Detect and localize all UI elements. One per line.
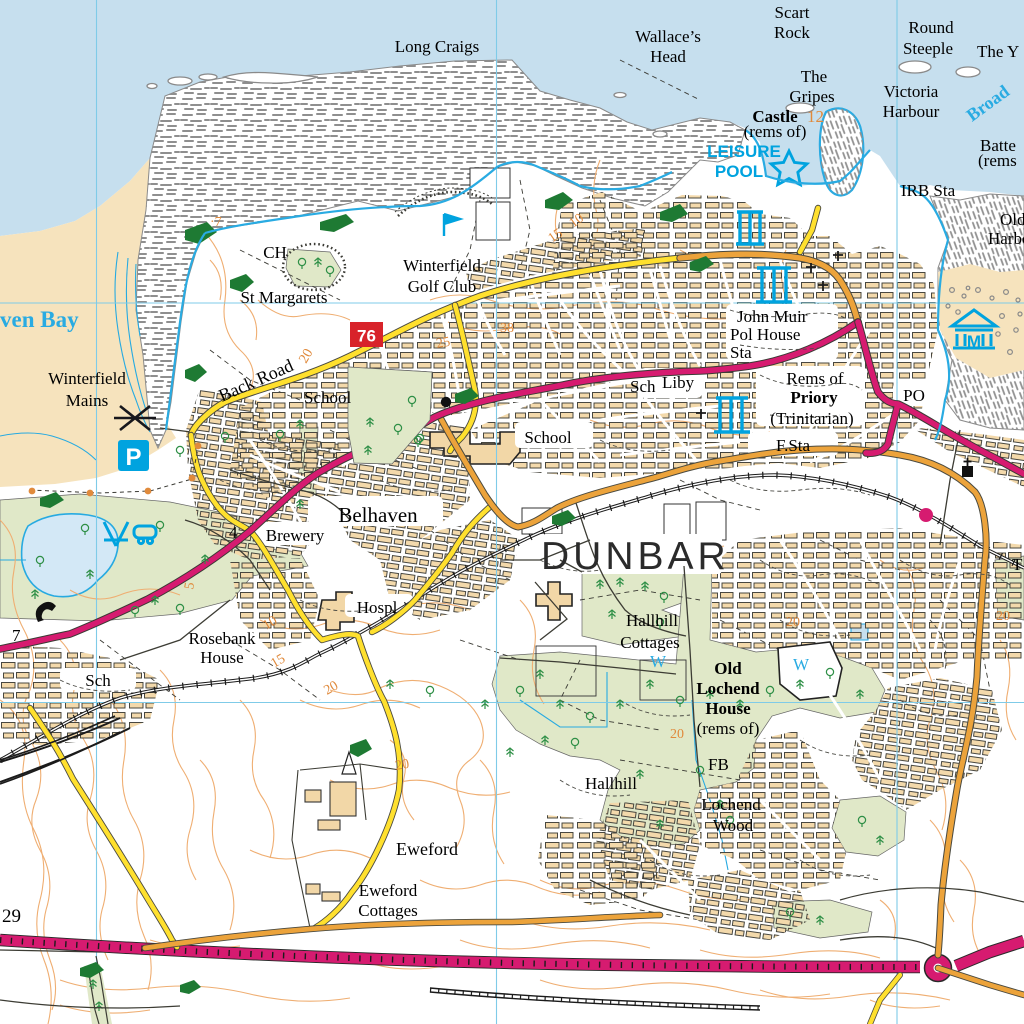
svg-text:(rems: (rems	[978, 151, 1017, 170]
svg-text:Cottages: Cottages	[358, 901, 418, 920]
svg-text:Liby: Liby	[662, 373, 695, 392]
svg-text:Winterfield: Winterfield	[48, 369, 126, 388]
svg-text:Golf Club: Golf Club	[408, 277, 476, 296]
svg-text:St Margarets: St Margarets	[240, 288, 327, 307]
svg-text:Sta: Sta	[730, 343, 752, 362]
svg-text:Harbour: Harbour	[883, 102, 940, 121]
svg-text:Pol House: Pol House	[730, 325, 800, 344]
svg-text:29: 29	[2, 906, 21, 927]
svg-text:Sch: Sch	[630, 377, 656, 396]
svg-text:LEISURE: LEISURE	[707, 142, 781, 161]
svg-text:Steeple: Steeple	[903, 39, 953, 58]
svg-text:Head: Head	[650, 47, 686, 66]
svg-text:Hospl: Hospl	[357, 598, 398, 617]
svg-text:Scart: Scart	[775, 3, 810, 22]
svg-text:Round: Round	[908, 18, 954, 37]
svg-text:Rosebank: Rosebank	[188, 629, 256, 648]
svg-text:(Trinitarian): (Trinitarian)	[770, 409, 853, 428]
svg-text:Rems of: Rems of	[786, 369, 843, 388]
svg-text:Lochend: Lochend	[701, 795, 761, 814]
svg-text:Old: Old	[714, 659, 742, 678]
svg-text:20: 20	[996, 609, 1010, 624]
svg-text:20: 20	[670, 727, 684, 742]
svg-text:School: School	[524, 428, 572, 447]
svg-text:·7: ·7	[210, 215, 222, 230]
svg-text:Mains: Mains	[66, 391, 109, 410]
svg-text:DUNBAR: DUNBAR	[541, 535, 730, 578]
svg-text:12: 12	[807, 107, 824, 126]
svg-text:W: W	[650, 652, 667, 671]
svg-text:Hallhill: Hallhill	[585, 774, 637, 793]
svg-text:P: P	[125, 444, 141, 471]
svg-text:Long Craigs: Long Craigs	[395, 37, 480, 56]
svg-text:Rock: Rock	[774, 23, 810, 42]
svg-text:M: M	[967, 332, 981, 351]
svg-text:20: 20	[786, 615, 800, 630]
svg-text:Cottages: Cottages	[620, 633, 680, 652]
svg-text:School: School	[304, 388, 352, 407]
svg-text:(rems of): (rems of)	[744, 122, 807, 141]
svg-text:Eweford: Eweford	[359, 881, 418, 900]
svg-text:F.Sta: F.Sta	[776, 436, 811, 455]
svg-text:20: 20	[394, 757, 410, 774]
svg-text:38: 38	[500, 321, 514, 336]
svg-text:PO: PO	[903, 386, 925, 405]
svg-text:The: The	[801, 67, 827, 86]
svg-text:Priory: Priory	[790, 388, 838, 407]
svg-text:House: House	[200, 648, 243, 667]
svg-text:(rems of): (rems of)	[697, 719, 760, 738]
svg-text:Eweford: Eweford	[396, 839, 458, 859]
svg-text:POOL: POOL	[715, 162, 763, 181]
svg-text:Hallhill: Hallhill	[626, 611, 678, 630]
svg-text:Belhaven: Belhaven	[338, 503, 418, 527]
svg-text:W: W	[793, 655, 810, 674]
svg-text:Victoria: Victoria	[884, 82, 939, 101]
svg-text:ven Bay: ven Bay	[0, 307, 79, 332]
svg-text:25: 25	[435, 335, 451, 352]
svg-text:FB: FB	[708, 755, 729, 774]
svg-text:Old: Old	[1000, 210, 1024, 229]
svg-text:Gripes: Gripes	[789, 87, 834, 106]
svg-text:Lochend: Lochend	[696, 679, 760, 698]
svg-text:The Y: The Y	[977, 42, 1019, 61]
svg-text:T: T	[1012, 555, 1023, 574]
svg-text:House: House	[705, 699, 751, 718]
svg-text:Harbo: Harbo	[988, 229, 1024, 248]
svg-text:Brewery: Brewery	[266, 526, 325, 545]
svg-text:CH: CH	[263, 243, 287, 262]
svg-text:Winterfield: Winterfield	[403, 256, 481, 275]
svg-text:76: 76	[357, 327, 376, 346]
svg-text:John Muir: John Muir	[737, 307, 808, 326]
svg-text:IRB Sta: IRB Sta	[901, 181, 956, 200]
svg-text:4: 4	[229, 523, 238, 542]
svg-text:7: 7	[12, 626, 21, 645]
svg-text:Wallace’s: Wallace’s	[635, 27, 701, 46]
svg-text:Sch: Sch	[85, 671, 111, 690]
svg-text:Wood: Wood	[713, 816, 754, 835]
